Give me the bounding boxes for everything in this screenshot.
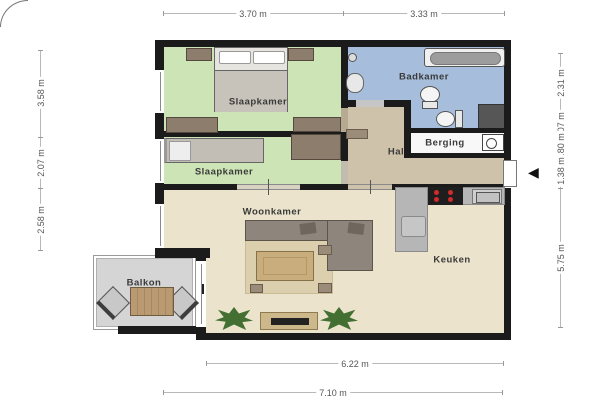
- toilet-tank: [422, 101, 438, 109]
- room-label-badkamer: Badkamer: [399, 72, 449, 83]
- dimension-label: 2.31 m: [556, 67, 566, 99]
- dimension-label: 2.58 m: [36, 204, 46, 236]
- balcony-table: [130, 287, 174, 316]
- dimension-label: 1.38 m: [556, 155, 566, 187]
- nightstand: [186, 48, 212, 61]
- sofa-cushion: [347, 222, 364, 235]
- pouf: [250, 284, 263, 293]
- door-slaapkamer-2: [341, 161, 348, 184]
- opening-tick: [370, 180, 371, 194]
- entrance-door-arc: [0, 0, 28, 27]
- room-label-slaapkamer-2: Slaapkamer: [195, 167, 253, 178]
- dimension-label: 7.10 m: [316, 388, 350, 398]
- bathtub: [424, 48, 505, 67]
- window-woonkamer: [155, 204, 164, 248]
- room-label-balkon: Balkon: [127, 278, 162, 289]
- floorplan: Slaapkamer Slaapkamer Badkamer Berging H…: [0, 0, 600, 400]
- dresser: [166, 117, 218, 133]
- washing-machine-icon: [482, 134, 504, 151]
- hall-table: [346, 129, 368, 139]
- entrance-arrow-icon: ◀: [528, 165, 539, 179]
- wall-west-step: [155, 248, 210, 258]
- room-label-berging: Berging: [425, 138, 464, 149]
- room-label-woonkamer: Woonkamer: [243, 207, 302, 218]
- window-slaapkamer-2: [155, 139, 164, 183]
- wall-north: [155, 40, 511, 47]
- dimension-label: 3.58 m: [36, 77, 46, 109]
- wall-under-balcony: [118, 326, 200, 334]
- opening-tick: [268, 179, 269, 195]
- wall-wc-south: [404, 128, 511, 133]
- kitchen-sink: [472, 189, 502, 204]
- shower-icon: [348, 53, 357, 62]
- nightstand: [288, 48, 314, 61]
- single-bed: [164, 138, 264, 163]
- wash-basin: [346, 73, 364, 93]
- dimension-label: 3.70 m: [236, 9, 270, 19]
- room-label-hal: Hal: [388, 147, 404, 158]
- pouf: [318, 245, 332, 255]
- sofa-cushion: [299, 222, 316, 235]
- entrance-door-leaf: [503, 160, 517, 187]
- pouf: [318, 283, 332, 293]
- window-slaapkamer-1: [155, 70, 164, 113]
- room-label-slaapkamer-1: Slaapkamer: [229, 97, 287, 108]
- wall-berging-south: [404, 153, 511, 158]
- room-label-keuken: Keuken: [433, 255, 470, 266]
- wall-south: [196, 333, 511, 340]
- tv-cabinet: [260, 312, 318, 330]
- counter-appliance: [401, 216, 426, 237]
- toilet-tank: [455, 110, 463, 128]
- toilet: [436, 111, 455, 127]
- dimension-label: 6.22 m: [338, 359, 372, 369]
- dimension-label: 3.33 m: [407, 9, 441, 19]
- dimension-label: 2.07 m: [36, 147, 46, 179]
- coffee-table: [256, 251, 314, 281]
- stove: [428, 187, 463, 205]
- wardrobe: [291, 134, 341, 160]
- dresser: [293, 117, 341, 132]
- door-badkamer: [356, 100, 384, 107]
- dimension-label: 5.75 m: [556, 242, 566, 274]
- dimension-line-top: [163, 13, 505, 14]
- balcony-door: [196, 261, 206, 327]
- balcony-door-handle: [202, 284, 204, 294]
- wall-east: [504, 40, 511, 340]
